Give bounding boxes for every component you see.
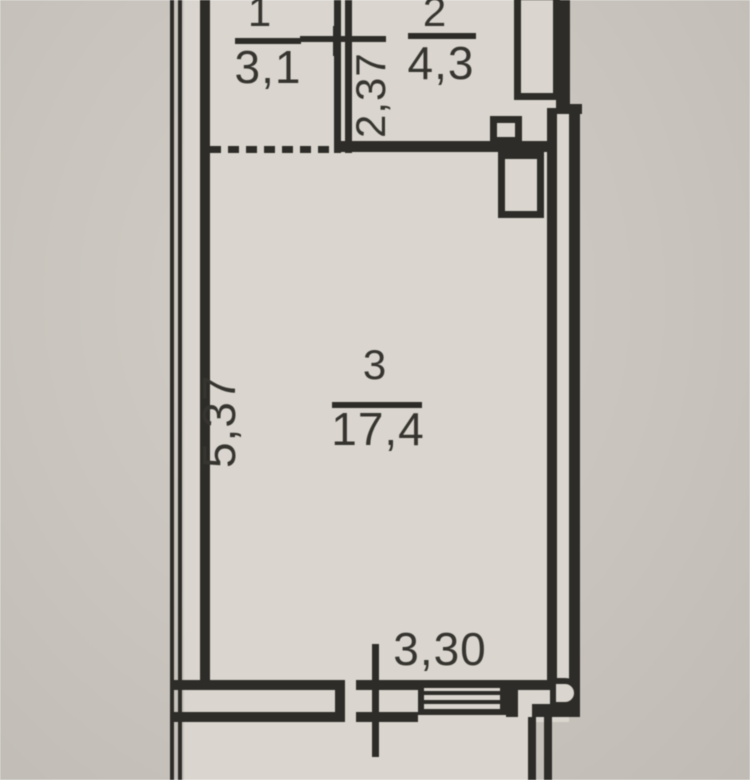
wall-niche-box (514, 0, 560, 100)
dimension-label-5-37: 5,37 (196, 358, 246, 484)
room-2-bottom-wall (341, 141, 557, 152)
dimension-line-top (300, 36, 386, 42)
floor-plan: 1 3,1 2 4,3 2,37 3 17,4 5,37 3,30 (0, 0, 750, 780)
small-wall-box (490, 116, 522, 144)
bottom-right-corner-round (550, 678, 580, 708)
lower-wall-stub-line-b (544, 717, 552, 780)
window-symbol (418, 682, 506, 715)
left-wall-outer-line-1 (170, 0, 174, 780)
bottom-wall-bottom-line-left (170, 712, 345, 722)
left-wall-inner-line (200, 0, 210, 682)
room-2-number: 2 (413, 0, 457, 33)
left-wall-outer-line-2 (178, 0, 182, 780)
dimension-label-2-37: 2,37 (350, 50, 396, 140)
dimension-tick-bottom (372, 644, 379, 757)
lower-wall-stub-line-a (528, 717, 536, 780)
partition-wall-1-2-line-a (334, 0, 341, 153)
right-wall-outer-line (569, 108, 580, 717)
room-2-area: 4,3 (399, 40, 483, 86)
dashed-partition-wall (210, 146, 338, 153)
right-wall-inner-line (547, 108, 557, 686)
room-3-area: 17,4 (329, 406, 427, 452)
room-interior-lower (184, 722, 528, 780)
bottom-wall-top-line-left (170, 680, 345, 690)
bottom-wall-bottom-line-mid (356, 712, 418, 722)
room-3-number: 3 (353, 344, 397, 386)
bottom-wall-block-divider (335, 680, 345, 722)
room-1-number: 1 (238, 0, 282, 33)
window-pane-line-1 (424, 691, 500, 695)
window-pane-line-2 (424, 700, 500, 704)
dimension-label-3-30: 3,30 (388, 626, 492, 672)
room-1-area: 3,1 (226, 44, 310, 90)
tall-wall-box (498, 152, 544, 218)
bottom-wall-post (506, 684, 518, 717)
